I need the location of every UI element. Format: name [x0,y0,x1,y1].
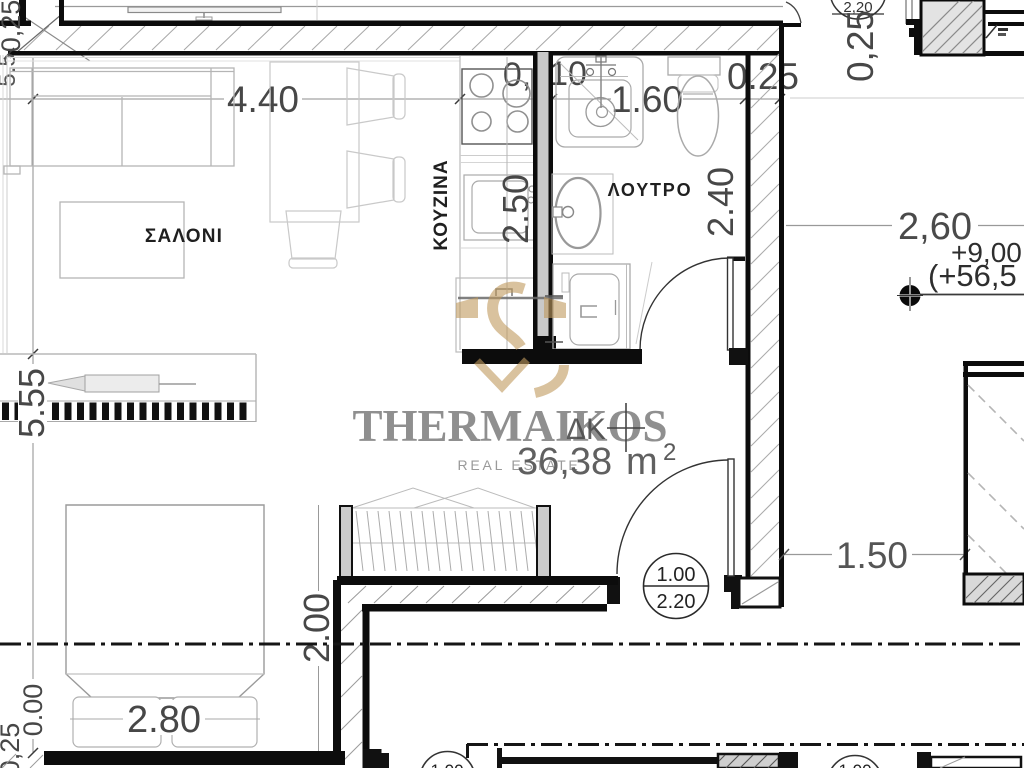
svg-text:0.25: 0.25 [727,56,799,97]
svg-text:2.20: 2.20 [657,591,696,613]
svg-text:5.55: 5.55 [11,368,52,438]
svg-text:ΚΟΥΖΙΝΑ: ΚΟΥΖΙΝΑ [431,159,452,250]
svg-text:ΣΑΛΟΝΙ: ΣΑΛΟΝΙ [145,226,223,247]
svg-text:m: m [626,441,658,483]
svg-text:2: 2 [663,439,676,466]
svg-text:(+56,5: (+56,5 [928,258,1017,293]
svg-text:0,25: 0,25 [0,723,25,768]
svg-text:36,38: 36,38 [517,441,612,483]
svg-text:10: 10 [549,55,587,93]
svg-text:2.40: 2.40 [700,167,741,237]
svg-text:2.00: 2.00 [296,593,337,663]
svg-text:THERMAIKOS: THERMAIKOS [352,401,667,451]
svg-text:2.80: 2.80 [127,699,201,741]
svg-text:ΛΟΥΤΡΟ: ΛΟΥΤΡΟ [608,180,693,200]
svg-text:1.50: 1.50 [836,535,908,576]
svg-text:2.50: 2.50 [495,174,536,244]
svg-text:1.60: 1.60 [611,79,683,120]
svg-text:1.00: 1.00 [838,761,871,768]
svg-text:0,25: 0,25 [0,0,26,52]
svg-text:1.00: 1.00 [657,564,696,586]
svg-text:1.00: 1.00 [430,761,463,768]
svg-text:0,25: 0,25 [840,10,881,82]
svg-text:4.40: 4.40 [227,79,299,120]
